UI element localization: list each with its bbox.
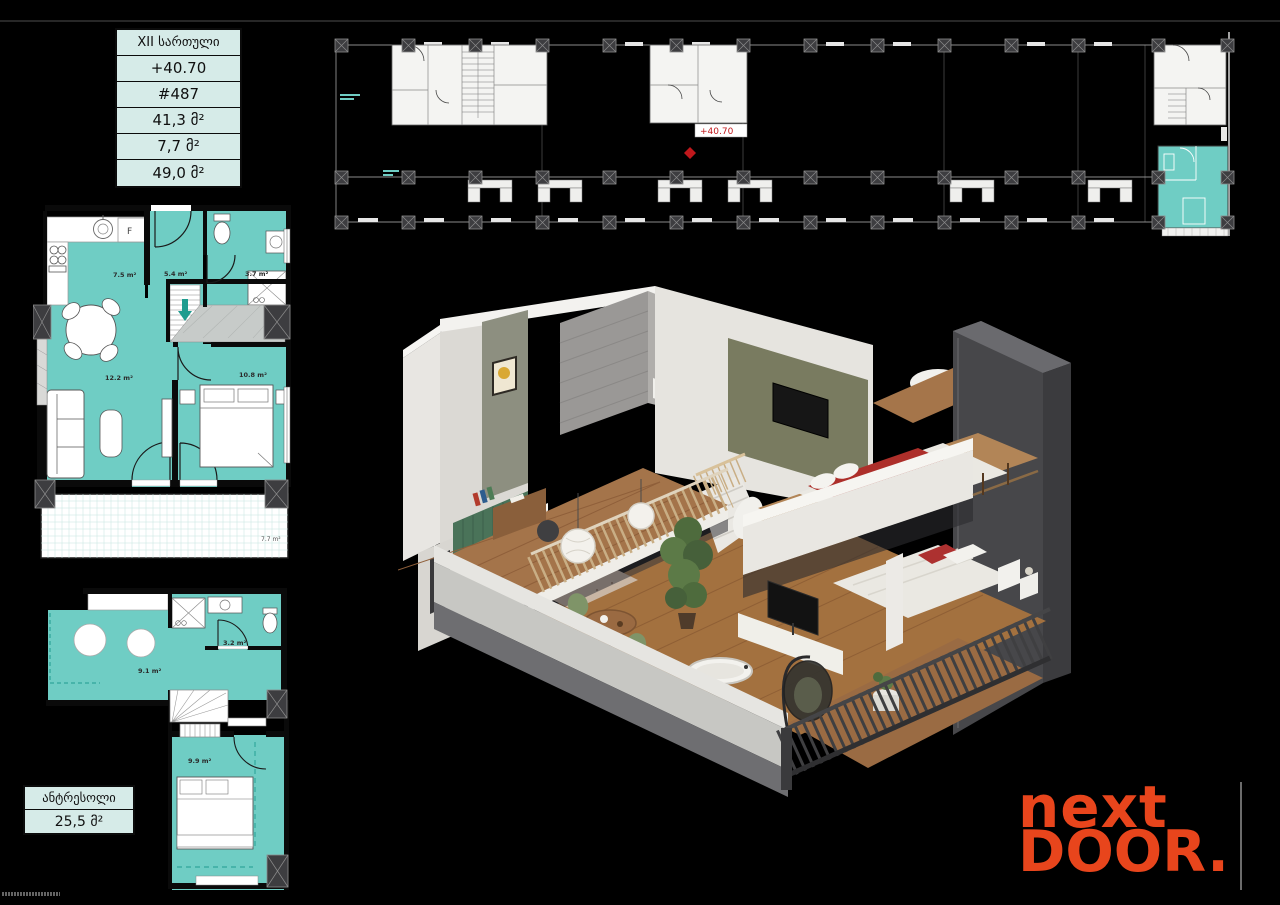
logo-dot: .: [1207, 819, 1229, 885]
mezzanine-info-table: ანტრესოლი 25,5 მ²: [23, 785, 135, 835]
logo-line2-wrap: DOOR.: [1018, 830, 1229, 876]
toilet-icon: [214, 222, 230, 244]
page-right-edge-line: [1240, 782, 1242, 890]
bathroom-area-label: 3.7 m²: [245, 270, 269, 278]
mezzanine-title: ანტრესოლი: [25, 787, 133, 810]
mezzanine-area: 25,5 მ²: [25, 810, 133, 833]
apartment-cluster-a: [392, 45, 547, 125]
mezzanine-floor-plan: 9.1 m² 3.2 m² 9.9 m²: [38, 583, 290, 905]
entry-opening: [151, 205, 191, 211]
balcony-area-label: 7.7 m²: [261, 536, 281, 543]
sink-icon: [266, 231, 286, 253]
mezz-bedroom-area-label: 9.9 m²: [188, 757, 212, 765]
page-edge-line: [0, 20, 1280, 22]
open-space-area-label: 9.1 m²: [138, 667, 162, 675]
round-void-icon: [74, 624, 106, 656]
building-floor-plan: +40.70: [328, 30, 1238, 238]
nightstand-icon: [180, 390, 195, 404]
area-balcony: 7,7 მ²: [117, 134, 240, 160]
unit-number: #487: [117, 82, 240, 108]
render-3d-cutaway: [398, 283, 1113, 855]
toilet-icon: [263, 613, 277, 633]
mezz-bath-area-label: 3.2 m²: [223, 639, 247, 647]
door-sill: [132, 480, 170, 486]
lamp: [1025, 567, 1033, 575]
fine-print-text: [2, 892, 60, 896]
shower-icon: [172, 598, 205, 628]
sink-counter-icon: [208, 597, 242, 613]
round-void-icon: [127, 629, 155, 657]
logo-line2: DOOR: [1018, 819, 1207, 885]
tv-stand-icon: [162, 399, 172, 457]
door-sill: [180, 480, 217, 486]
floor-label: XII სართული: [117, 30, 240, 56]
bedroom-area-label: 10.8 m²: [239, 371, 267, 379]
coffee-table-icon: [100, 410, 122, 457]
living-area-label: 12.2 m²: [105, 374, 133, 382]
nextdoor-logo: next DOOR.: [1018, 784, 1229, 876]
area-total: 49,0 მ²: [117, 160, 240, 186]
desk-chair: [537, 520, 559, 542]
apartment-cluster-b: [650, 45, 747, 123]
elevation-label: +40.70: [117, 56, 240, 82]
subject-unit-highlight: [1158, 146, 1228, 236]
sofa-icon: [47, 390, 84, 478]
kitchen-area-label: 7.5 m²: [113, 271, 137, 279]
page: XII სართული +40.70 #487 41,3 მ² 7,7 მ² 4…: [0, 0, 1280, 905]
unit-floor-plan: F: [33, 203, 295, 575]
area-net: 41,3 მ²: [117, 108, 240, 134]
fridge-label: F: [127, 227, 132, 237]
mezz-parapet-band: [88, 593, 168, 610]
balcony: 7.7 m²: [41, 494, 288, 558]
kitchen-sink-icon: [94, 220, 113, 239]
unit-info-table: XII სართული +40.70 #487 41,3 მ² 7,7 მ² 4…: [115, 28, 242, 188]
hall-area-label: 5.4 m²: [164, 270, 188, 278]
elevation-marker-label: +40.70: [700, 127, 734, 137]
